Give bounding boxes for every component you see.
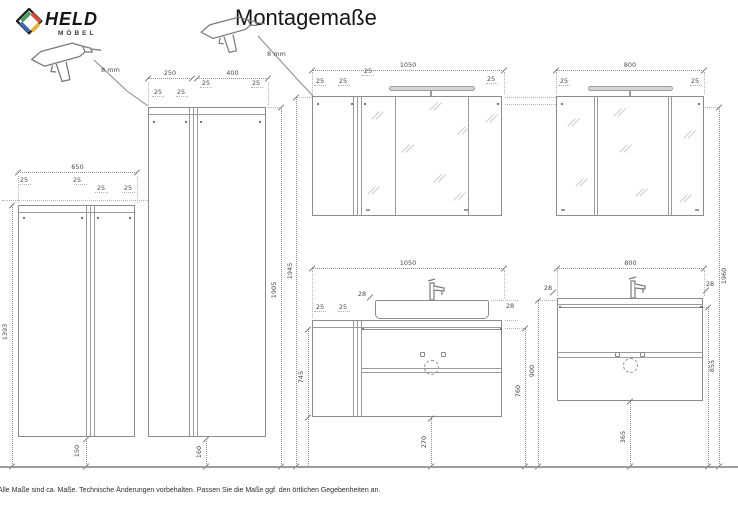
siphon-cutout	[424, 360, 439, 375]
handle-groove	[364, 329, 501, 330]
dim-v800-floor-height: 900	[527, 356, 537, 386]
side-unit-gap-line	[361, 97, 362, 215]
dim-c250400-height-line	[281, 107, 282, 466]
door-gap-line	[86, 206, 87, 436]
dim-v1050-gap-line	[431, 418, 432, 466]
vanity-cabinet-800	[557, 298, 703, 401]
mirror-door-divider	[671, 97, 672, 215]
mirror-cabinet-1050	[312, 96, 502, 216]
door-handle	[366, 209, 370, 211]
hinge-mark	[259, 121, 261, 123]
dim-m1050-inset4: 25	[484, 75, 498, 83]
drill-icon-left	[30, 40, 103, 84]
dim-c650-inset2: 25	[70, 176, 84, 184]
dim-v1050-height-line	[308, 329, 309, 466]
dim-v800-side-height: 855	[707, 351, 717, 381]
mirror-door-divider	[597, 97, 598, 215]
dim-v1050-floor-height: 760	[513, 376, 523, 406]
montage-diagram: HELD MÖBEL Montagemaße	[0, 0, 738, 522]
hinge-mark	[153, 121, 155, 123]
drawer-divider	[558, 352, 702, 353]
side-unit-gap-line	[353, 97, 354, 215]
cabinet-top-panel-line	[19, 212, 134, 213]
tall-cabinet-650	[18, 205, 135, 437]
wash-basin	[375, 300, 489, 319]
dim-c650-width-line	[18, 172, 137, 173]
dim-v800-width: 800	[557, 259, 704, 267]
dim-m1050-inset2: 25	[336, 77, 350, 85]
hinge-mark	[351, 103, 353, 105]
door-gap-line	[90, 206, 91, 436]
dim-m1050-height: 1945	[285, 256, 295, 286]
dim-c650-height-line	[12, 205, 13, 466]
dim-v1050-floor-line	[525, 328, 526, 466]
dim-c650-inset3: 25	[94, 184, 108, 192]
door-handle	[561, 209, 565, 211]
dim-c250400-inset3: 25	[199, 79, 213, 87]
dim-v1050-inset1: 25	[313, 303, 327, 311]
dim-m800-width: 800	[556, 61, 704, 69]
dim-c250400-inset2: 25	[174, 88, 188, 96]
door-gap-line	[197, 108, 198, 436]
push-opener-mark	[441, 352, 446, 357]
dim-v800-top-thickness-left: 28	[541, 284, 555, 292]
dim-c250400-inset4: 25	[249, 79, 263, 87]
door-handle	[464, 209, 468, 211]
hinge-mark	[317, 103, 319, 105]
dim-c250-width-line	[148, 78, 192, 79]
dim-c250400-inset1: 25	[151, 88, 165, 96]
side-unit-gap-line	[353, 321, 354, 416]
dim-m1050-width-line	[312, 70, 504, 71]
hinge-mark	[81, 217, 83, 219]
dim-v1050-width: 1050	[312, 259, 504, 267]
push-opener-mark	[420, 352, 425, 357]
push-opener-mark	[615, 352, 620, 357]
countertop-line	[558, 304, 702, 305]
dim-c250400-height: 1905	[269, 275, 279, 305]
door-gap-line	[94, 206, 95, 436]
mirror-door-divider	[594, 97, 595, 215]
dim-c650-inset4: 25	[121, 184, 135, 192]
countertop-line	[313, 327, 501, 328]
mirror-door-divider	[395, 97, 396, 215]
dim-m800-inset1: 25	[557, 77, 571, 85]
dim-m800-width-line	[556, 70, 704, 71]
dim-c250400-bottom-gap: 160	[194, 437, 204, 467]
dim-v800-width-line	[557, 268, 704, 269]
dim-v1050-width-line	[312, 268, 504, 269]
dim-c650-width: 650	[18, 163, 137, 171]
door-gap-line	[189, 108, 190, 436]
cabinet-top-panel-line	[149, 114, 265, 115]
vanity-cabinet-1050	[312, 320, 502, 417]
dim-c650-gap-line	[86, 439, 87, 466]
side-unit-gap-line	[357, 321, 358, 416]
hinge-mark	[497, 103, 499, 105]
dim-m800-inset2: 25	[688, 77, 702, 85]
side-unit-gap-line	[357, 97, 358, 215]
push-opener-mark	[640, 352, 645, 357]
dim-c650-height: 1393	[0, 317, 10, 347]
handle-groove	[560, 307, 701, 308]
hinge-mark	[185, 121, 187, 123]
dim-v800-floor-line	[538, 300, 539, 466]
dim-m1050-inset3: 25	[361, 67, 375, 75]
footer-note: Alle Maße sind ca. Maße. Technische Ände…	[0, 487, 380, 494]
dim-v800-top-thickness-right: 28	[703, 280, 717, 288]
dim-c250400-gap-line	[206, 439, 207, 466]
tall-cabinet-250-400	[148, 107, 266, 437]
hinge-mark	[23, 217, 25, 219]
hinge-mark	[364, 103, 366, 105]
siphon-cutout	[623, 358, 638, 373]
dim-v1050-basin-thickness-left: 28	[355, 290, 369, 298]
dim-m1050-height-line	[296, 97, 297, 466]
dim-v1050-bottom-gap: 270	[419, 427, 429, 457]
light-fixture	[389, 86, 475, 91]
dim-c650-bottom-gap: 150	[72, 436, 82, 466]
dim-v800-side-height-line	[708, 307, 709, 466]
dim-c400-width: 400	[197, 69, 268, 77]
hinge-mark	[129, 217, 131, 219]
dim-c250-width: 250	[148, 69, 192, 77]
dim-m800-height: 1960	[719, 261, 729, 291]
dim-v800-bottom-gap: 365	[618, 422, 628, 452]
hinge-mark	[561, 103, 563, 105]
hinge-mark	[698, 103, 700, 105]
door-gap-line	[193, 108, 194, 436]
drill-hole-size-label-left: 8 mm	[101, 66, 120, 74]
dim-v1050-height: 745	[296, 362, 306, 392]
mirror-door-divider	[668, 97, 669, 215]
hinge-mark	[97, 217, 99, 219]
dim-v1050-basin-thickness-right: 28	[503, 302, 517, 310]
dim-v1050-inset2: 25	[336, 303, 350, 311]
door-handle	[695, 209, 699, 211]
dim-m1050-inset1: 25	[313, 77, 327, 85]
drill-icon-top	[200, 15, 268, 56]
hinge-mark	[200, 121, 202, 123]
leader-line-top	[258, 36, 313, 96]
faucet-icon-vanity-800	[629, 277, 645, 298]
drill-hole-size-label-top: 8 mm	[267, 50, 286, 58]
mirror-door-divider	[468, 97, 469, 215]
faucet-icon-vanity-1050	[428, 279, 444, 300]
dim-c650-inset1: 25	[17, 176, 31, 184]
dim-v800-gap-line	[630, 401, 631, 466]
dim-m1050-width: 1050	[312, 61, 504, 69]
floor-line	[0, 466, 738, 468]
